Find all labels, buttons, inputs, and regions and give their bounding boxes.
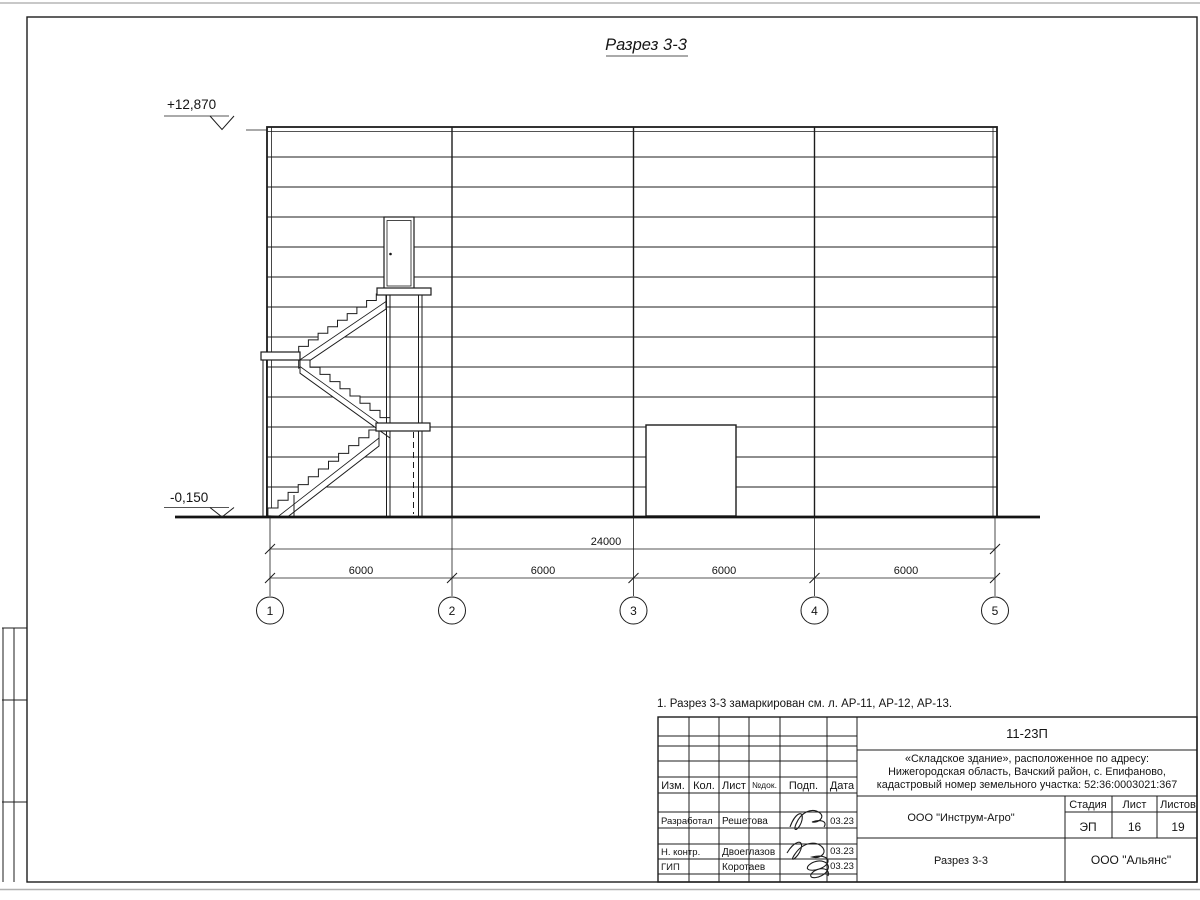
axis-label-1: 1 <box>267 604 274 618</box>
facade-outline <box>267 127 997 517</box>
org1: ООО "Инструм-Агро" <box>907 812 1014 824</box>
stair-landing-lower <box>376 423 430 431</box>
axis-label-2: 2 <box>449 604 456 618</box>
dimension-label-span-2: 6000 <box>531 565 555 577</box>
sheet-label: Лист <box>1123 799 1147 811</box>
doc-number: 11-23П <box>1006 726 1048 741</box>
sheet-title: Разрез 3-3 <box>934 855 988 867</box>
stair-landing-upper <box>377 288 431 295</box>
dimension-label-span-1: 6000 <box>349 565 373 577</box>
drawing-note: 1. Разрез 3-3 замаркирован см. л. АР-11,… <box>657 698 952 710</box>
row1-name: Решетова <box>722 816 768 827</box>
col-izm: Изм. <box>661 780 685 792</box>
stair-flight-lower <box>268 430 379 517</box>
sheets-value: 19 <box>1171 820 1185 834</box>
page-title: Разрез 3-3 <box>605 36 688 54</box>
project-line2: Нижегородская область, Вачский район, с.… <box>888 766 1166 778</box>
row2-date: 03.23 <box>830 846 854 857</box>
building-section <box>175 127 1040 517</box>
signature-rows23 <box>787 842 828 878</box>
elevation-bottom-value: -0,150 <box>170 490 208 505</box>
drawing-sheet: Разрез 3-3 <box>0 0 1200 900</box>
upper-door <box>384 217 414 289</box>
elevation-mark-top: +12,870 <box>164 97 267 130</box>
stage-label: Стадия <box>1069 799 1107 811</box>
gate-opening <box>646 425 736 516</box>
row1-date: 03.23 <box>830 816 854 827</box>
dimension-ticks <box>265 544 1000 583</box>
signature-row1 <box>790 810 825 829</box>
axis-bubbles: 1 2 3 4 5 <box>257 597 1009 624</box>
title-block: Изм. Кол. Лист №док. Подп. Дата Разработ… <box>658 717 1197 882</box>
sheet-value: 16 <box>1128 820 1142 834</box>
drawing-canvas: Разрез 3-3 <box>0 0 1200 900</box>
facade-outline-inner <box>267 127 997 517</box>
elevation-mark-bottom: -0,150 <box>164 490 234 517</box>
col-list: Лист <box>722 780 746 792</box>
dimension-lines: 24000 6000 6000 6000 6000 <box>265 517 1000 596</box>
axis-label-4: 4 <box>811 604 818 618</box>
col-data: Дата <box>830 780 855 792</box>
upper-door-handle <box>389 253 392 256</box>
org2: ООО "Альянс" <box>1091 853 1171 867</box>
row3-date: 03.23 <box>830 861 854 872</box>
upper-door-frame <box>384 217 414 289</box>
project-line3: кадастровый номер земельного участка: 52… <box>877 779 1177 791</box>
row2-role: Н. контр. <box>661 847 700 858</box>
row3-role: ГИП <box>661 862 680 873</box>
axis-extension-lines <box>270 517 995 596</box>
left-margin-stamp <box>2 628 27 882</box>
row2-name: Двоеглазов <box>722 847 775 858</box>
row3-name: Коротаев <box>722 862 765 873</box>
sheets-label: Листов <box>1160 799 1196 811</box>
project-line1: «Складское здание», расположенное по адр… <box>905 753 1149 765</box>
facade-column-lines <box>452 127 815 517</box>
stage-value: ЭП <box>1079 820 1096 834</box>
stair-landing-middle <box>261 352 300 360</box>
axis-label-3: 3 <box>630 604 637 618</box>
row1-role: Разработал <box>661 816 713 827</box>
col-podp: Подп. <box>789 780 818 792</box>
dimension-label-span-3: 6000 <box>712 565 736 577</box>
elevation-top-value: +12,870 <box>167 97 216 112</box>
dimension-label-total: 24000 <box>591 536 622 548</box>
dimension-chains <box>270 549 995 578</box>
dimension-label-span-4: 6000 <box>894 565 918 577</box>
axis-label-5: 5 <box>992 604 999 618</box>
col-ndok: №док. <box>752 780 777 790</box>
col-kol: Кол. <box>693 780 715 792</box>
stair-flight-upper <box>299 294 386 368</box>
